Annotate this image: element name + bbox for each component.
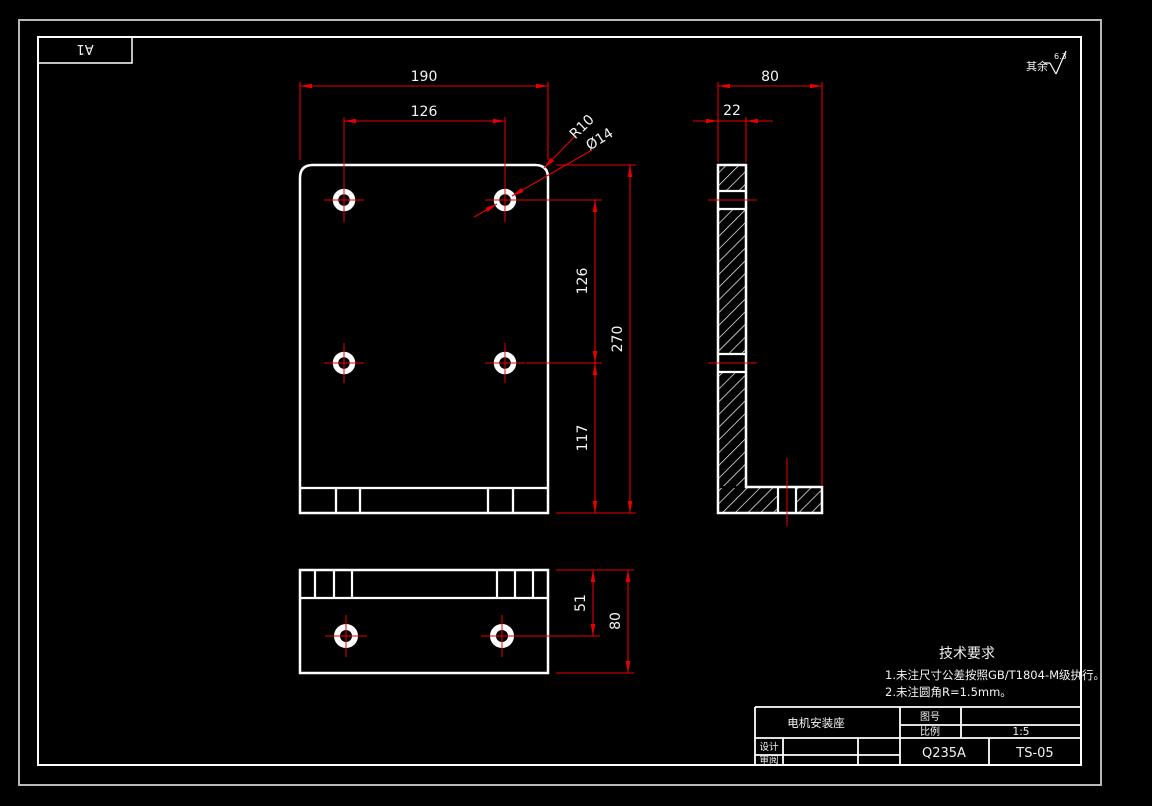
- engineering-drawing: A1 其余 6.3: [0, 0, 1152, 806]
- cad-viewport: A1 其余 6.3: [0, 0, 1152, 806]
- mounting-holes-front: [336, 192, 514, 372]
- dim-hole-offset: 51: [573, 594, 589, 612]
- scale-label: 比例: [920, 725, 940, 738]
- title-block: 电机安装座 图号 比例 1:5 设计 审阅 Q235A TS-05: [755, 707, 1081, 766]
- tech-requirement-item: 1.未注尺寸公差按照GB/T1804-M级执行。: [885, 668, 1105, 682]
- drawing-no-label: 图号: [920, 711, 940, 723]
- technical-requirements: 技术要求 1.未注尺寸公差按照GB/T1804-M级执行。 2.未注圆角R=1.…: [885, 646, 1105, 699]
- hole-centerlines-front: [324, 117, 545, 383]
- dim-hole-to-bottom: 117: [575, 425, 591, 452]
- bottom-view-outline: [300, 570, 548, 673]
- dim-width: 190: [411, 69, 438, 85]
- front-view: 190 126 R10 Ø14 126 117 270: [300, 69, 636, 513]
- dim-depth-bottom: 80: [608, 612, 624, 630]
- dim-hole-spacing-y: 126: [575, 268, 591, 295]
- designer-label: 设计: [759, 741, 779, 753]
- reviewer-label: 审阅: [759, 754, 778, 766]
- material-value: Q235A: [922, 746, 966, 761]
- tech-requirements-title: 技术要求: [939, 646, 995, 662]
- side-view-dimensions: [693, 82, 822, 486]
- paper-size-label: A1: [76, 41, 93, 56]
- dim-thickness: 22: [723, 103, 741, 119]
- dim-height: 270: [610, 326, 626, 353]
- hidden-hole-edges-bottom: [315, 570, 533, 598]
- section-hatching: [719, 166, 821, 512]
- tech-requirement-item: 2.未注圆角R=1.5mm。: [885, 685, 1012, 699]
- dim-depth: 80: [761, 69, 779, 85]
- dim-hole-spacing-x: 126: [411, 104, 438, 120]
- drawing-code: TS-05: [1015, 746, 1053, 761]
- surface-roughness-note: 其余 6.3: [1026, 51, 1067, 74]
- bottom-view: 51 80: [300, 570, 634, 673]
- scale-value: 1:5: [1013, 726, 1030, 738]
- side-view: 80 22: [693, 69, 822, 526]
- flange-hole-edges-front: [336, 488, 513, 513]
- hole-centerlines-bottom: [325, 615, 523, 657]
- surface-note-text: 其余: [1026, 59, 1048, 73]
- front-view-outline: [300, 165, 548, 513]
- part-name: 电机安装座: [787, 716, 845, 730]
